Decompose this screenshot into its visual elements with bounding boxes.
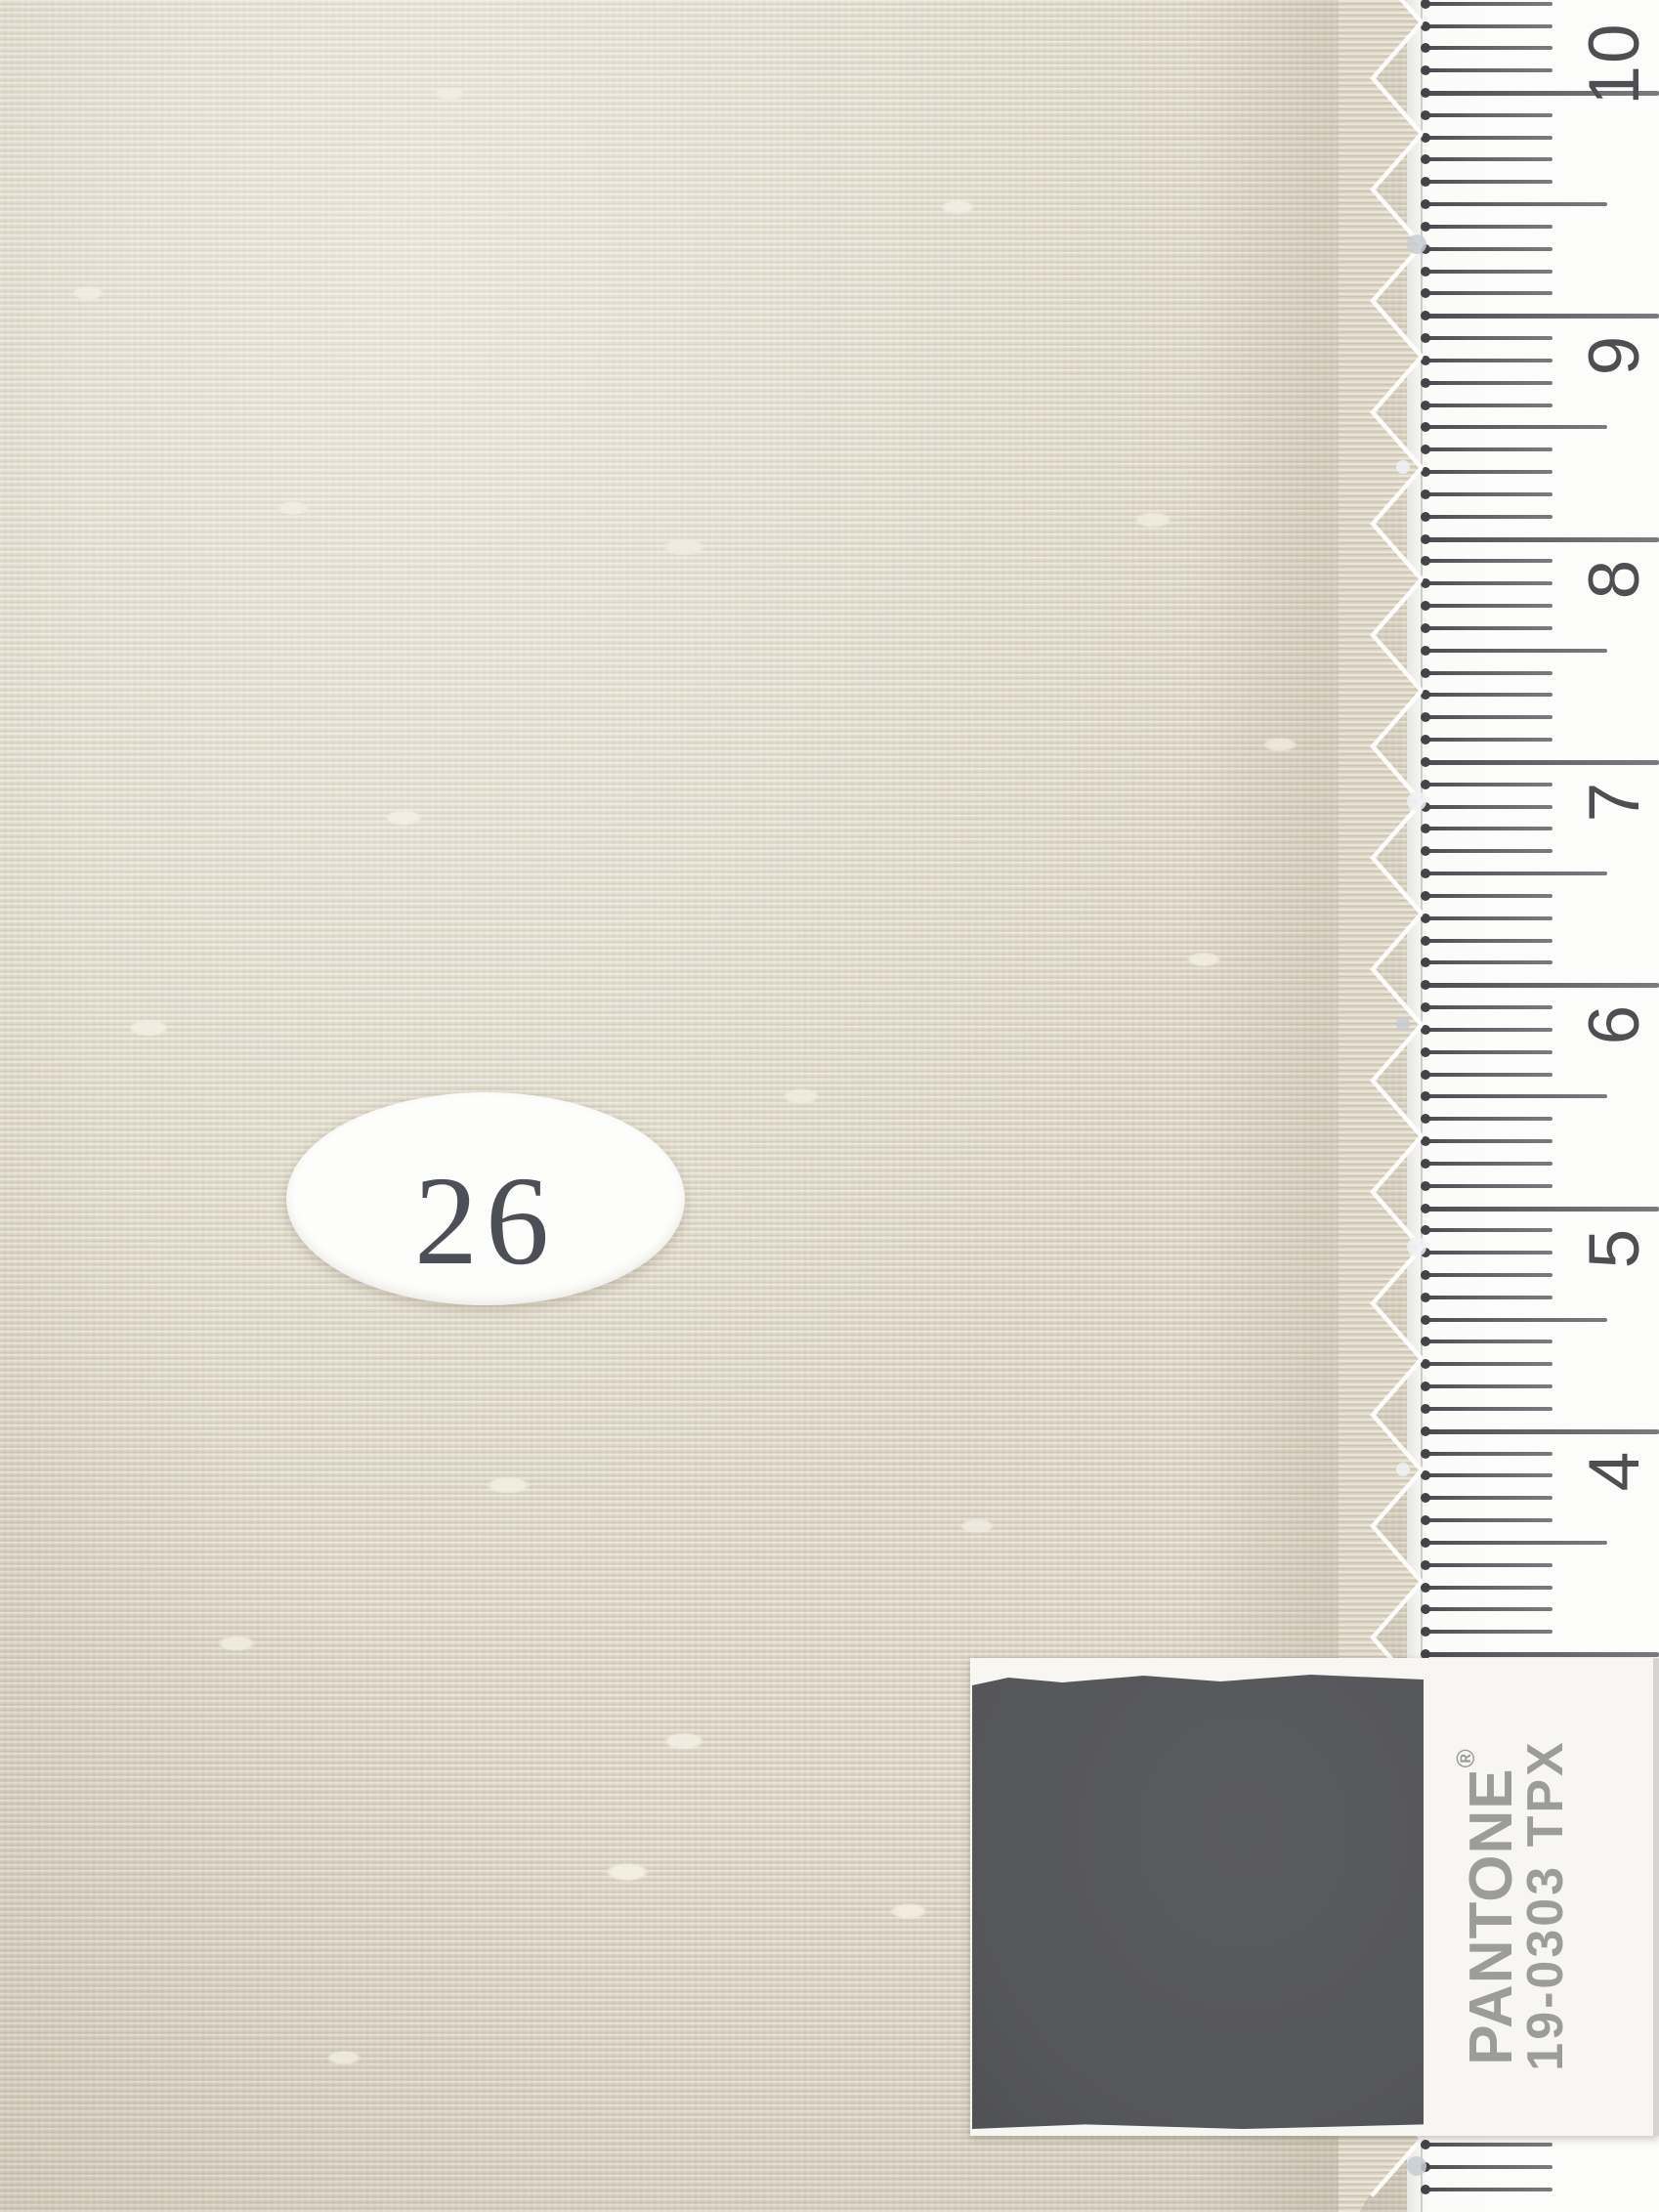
pantone-color-code: 19-0303 TPX: [1514, 1739, 1577, 2071]
ruler-cm-label: 7: [1574, 703, 1656, 899]
fabric-swatch-photo: 10987654 26 PANTONE® 19-0303 TPX: [0, 0, 1659, 2212]
pantone-brand: PANTONE®: [1430, 1735, 1501, 2079]
ruler-cm-label: 6: [1574, 926, 1656, 1122]
ruler-cm-label: 4: [1574, 1373, 1656, 1568]
ruler-cm-label: 5: [1574, 1150, 1656, 1345]
swatch-number: 26: [414, 1148, 557, 1295]
ruler-tick: [1425, 1652, 1659, 1657]
swatch-number-sticker: 26: [286, 1092, 685, 1305]
pantone-color-swatch: [972, 1672, 1424, 2129]
ruler-cm-label: 9: [1574, 257, 1656, 452]
pantone-card: PANTONE® 19-0303 TPX: [970, 1658, 1659, 2136]
ruler-cm-label: 10: [1574, 0, 1656, 161]
ruler-cm-label: 8: [1574, 481, 1656, 676]
registered-trademark-symbol: ®: [1451, 1749, 1480, 1767]
